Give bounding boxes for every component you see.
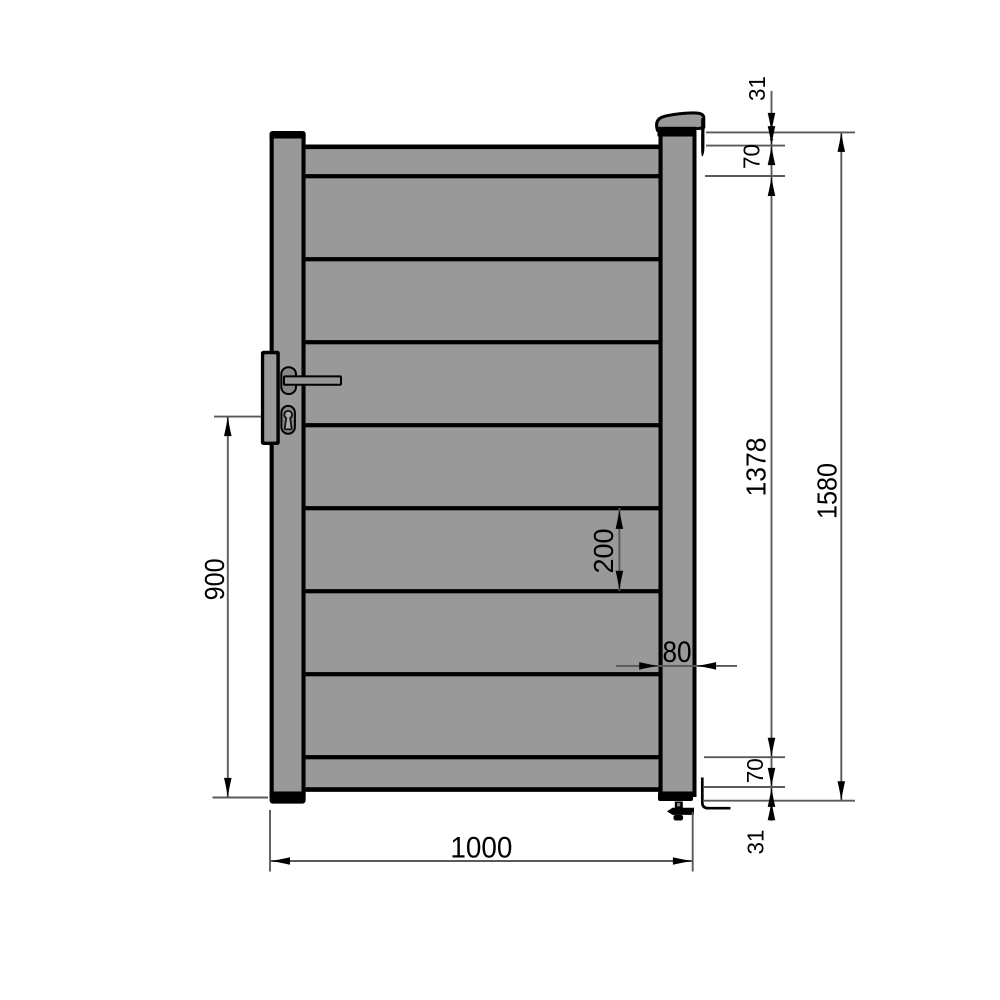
- svg-text:900: 900: [199, 558, 230, 600]
- svg-text:1580: 1580: [812, 463, 843, 519]
- svg-text:31: 31: [743, 830, 769, 855]
- svg-text:80: 80: [663, 636, 692, 669]
- svg-text:1000: 1000: [450, 832, 512, 865]
- svg-text:31: 31: [744, 76, 770, 101]
- svg-text:70: 70: [738, 144, 764, 169]
- svg-text:1378: 1378: [741, 438, 772, 497]
- svg-text:200: 200: [588, 529, 619, 574]
- svg-text:70: 70: [742, 758, 768, 783]
